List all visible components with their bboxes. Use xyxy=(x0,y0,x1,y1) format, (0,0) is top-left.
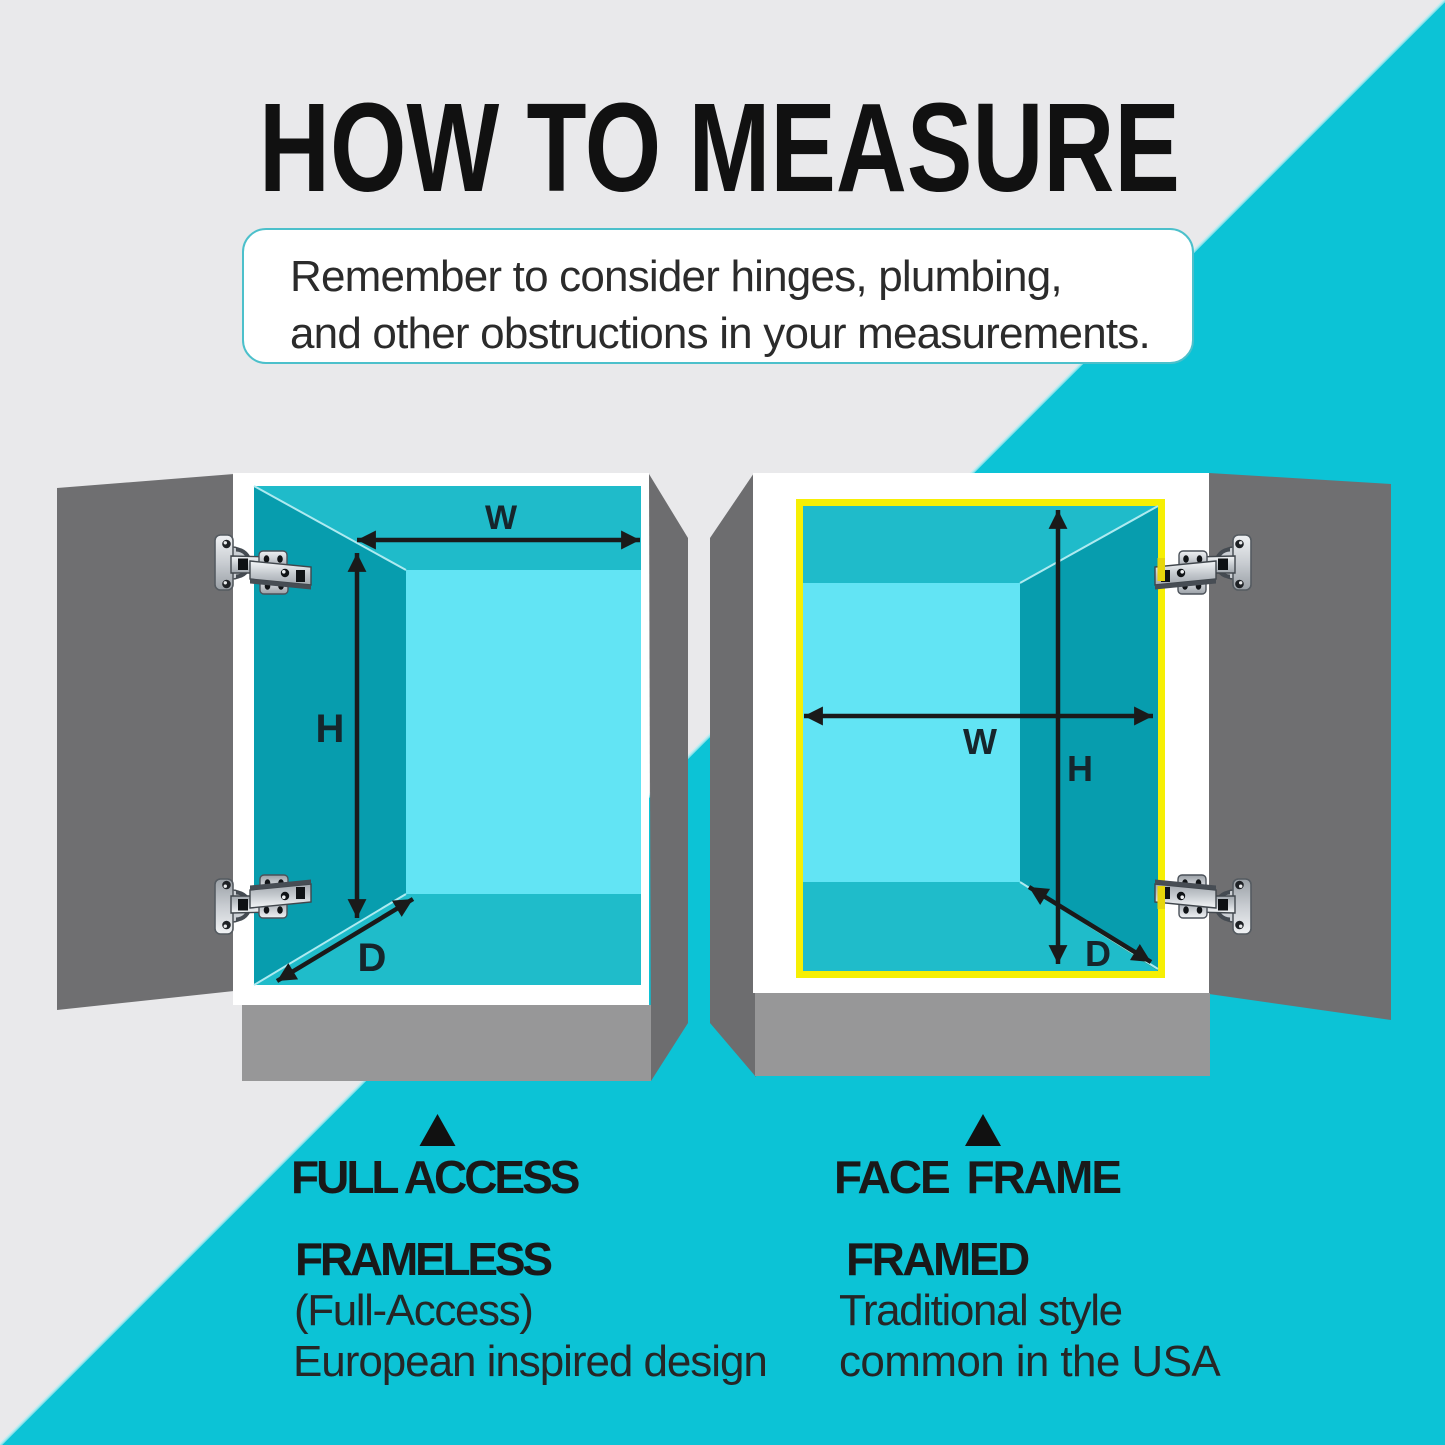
svg-text:D: D xyxy=(1085,933,1111,974)
svg-text:W: W xyxy=(963,721,997,762)
svg-text:H: H xyxy=(316,707,345,751)
svg-text:H: H xyxy=(1067,748,1093,789)
svg-text:W: W xyxy=(485,499,518,537)
svg-text:D: D xyxy=(358,936,387,980)
